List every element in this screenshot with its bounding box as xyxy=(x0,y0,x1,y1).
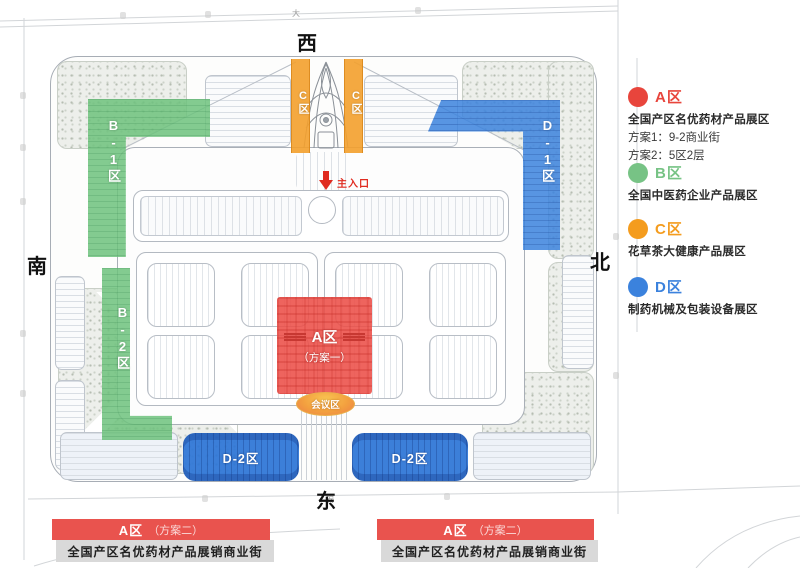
banner-left-title-bar: A区 （方案二） xyxy=(52,519,270,540)
banner-left-title: A区 xyxy=(119,520,143,539)
courtyard xyxy=(429,335,497,399)
site-plan-page: 大 安 xyxy=(0,0,800,568)
legend-label-c: C区 xyxy=(655,218,683,239)
road-text-smudge xyxy=(205,11,211,18)
stall-row-left-upper xyxy=(55,276,85,370)
conference-area: 会议区 xyxy=(296,392,355,416)
banner-left-subtitle: （方案二） xyxy=(148,522,203,538)
legend-plan1-a: 方案1：9-2商业街 xyxy=(628,129,796,145)
banner-right-title: A区 xyxy=(443,520,467,539)
zone-a-center: A区 （方案一） xyxy=(277,297,372,394)
road-text-smudge xyxy=(613,372,619,379)
courtyard xyxy=(429,263,497,327)
zone-a-label: A区 xyxy=(312,326,338,347)
zone-b1-label: B-1区 xyxy=(94,118,120,184)
stall-row-bottom-right xyxy=(473,432,591,480)
zone-a-stripe-bar xyxy=(284,333,306,341)
road-text-smudge xyxy=(120,12,126,19)
road-text-smudge xyxy=(202,495,208,502)
legend-desc-d: 制药机械及包装设备展区 xyxy=(628,301,796,317)
zone-c-right-label: C区 xyxy=(344,90,361,115)
east-entrance-corridor xyxy=(301,406,347,480)
zone-b2-label: B-2区 xyxy=(103,305,129,371)
central-atrium xyxy=(308,196,336,224)
conference-label: 会议区 xyxy=(311,397,340,411)
compass-west: 西 xyxy=(297,27,317,56)
legend-circle-d xyxy=(628,277,648,297)
road-name-char-top: 大 xyxy=(292,8,300,19)
banner-right-subtitle: （方案二） xyxy=(473,522,528,538)
legend-label-a: A区 xyxy=(655,86,683,107)
zone-a-stripe-bar xyxy=(343,333,365,341)
road-text-smudge xyxy=(613,233,619,240)
legend-desc-b: 全国中医药企业产品展区 xyxy=(628,187,796,203)
upper-hall-east-wing xyxy=(342,196,504,236)
legend-item-a: A区 全国产区名优药材产品展区 方案1：9-2商业街 方案2：5区2层 xyxy=(628,86,796,163)
legend-circle-a xyxy=(628,87,648,107)
upper-hall-west-wing xyxy=(140,196,302,236)
zone-d2-left-label: D-2区 xyxy=(223,448,260,467)
parking-rows-top-left xyxy=(205,75,291,147)
road-text-smudge xyxy=(20,330,26,337)
zone-d2-left: D-2区 xyxy=(183,433,299,481)
banner-left-desc: 全国产区名优药材产品展销商业街 xyxy=(67,543,262,560)
banner-left-desc-bar: 全国产区名优药材产品展销商业街 xyxy=(56,540,274,562)
banner-right-desc: 全国产区名优药材产品展销商业街 xyxy=(392,543,587,560)
zone-d2-right-label: D-2区 xyxy=(392,448,429,467)
compass-north: 北 xyxy=(590,246,610,275)
road-text-smudge xyxy=(415,7,421,14)
zone-d2-right: D-2区 xyxy=(352,433,468,481)
banner-right-desc-bar: 全国产区名优药材产品展销商业街 xyxy=(381,540,598,562)
legend-desc-c: 花草茶大健康产品展区 xyxy=(628,243,796,259)
banner-right-title-bar: A区 （方案二） xyxy=(377,519,594,540)
legend-label-d: D区 xyxy=(655,276,683,297)
legend-label-b: B区 xyxy=(655,162,683,183)
compass-south: 南 xyxy=(27,250,47,279)
legend-item-b: B区 全国中医药企业产品展区 xyxy=(628,162,796,203)
legend-circle-c xyxy=(628,219,648,239)
road-text-smudge xyxy=(20,144,26,151)
legend-desc-a: 全国产区名优药材产品展区 xyxy=(628,111,796,127)
zone-c-left-label: C区 xyxy=(291,90,308,115)
legend-item-c: C区 花草茶大健康产品展区 xyxy=(628,218,796,259)
compass-east: 东 xyxy=(316,485,336,514)
main-entrance-arrow-icon xyxy=(319,171,333,191)
road-text-smudge xyxy=(20,92,26,99)
courtyard xyxy=(147,263,215,327)
legend-plan2-a: 方案2：5区2层 xyxy=(628,147,796,163)
legend-item-d: D区 制药机械及包装设备展区 xyxy=(628,276,796,317)
legend-circle-b xyxy=(628,163,648,183)
zone-d1-label: D-1区 xyxy=(528,118,554,184)
road-text-smudge xyxy=(444,493,450,500)
road-text-smudge xyxy=(20,198,26,205)
main-entrance-label: 主入口 xyxy=(337,175,370,190)
zone-a-sublabel: （方案一） xyxy=(298,350,351,365)
courtyard xyxy=(147,335,215,399)
road-text-smudge xyxy=(20,390,26,397)
